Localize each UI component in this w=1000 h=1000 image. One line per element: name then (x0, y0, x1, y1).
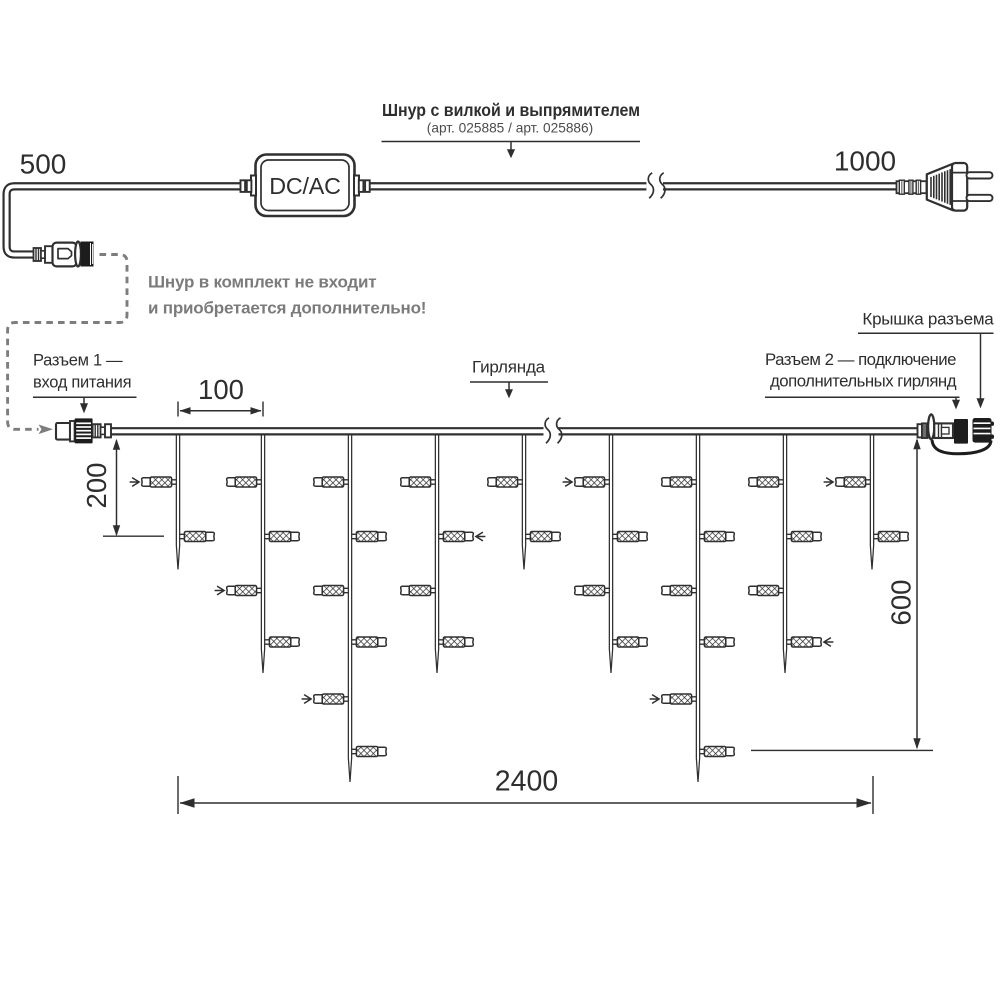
svg-text:Разъем 1 —: Разъем 1 — (33, 352, 123, 370)
svg-text:дополнительных гирлянд: дополнительных гирлянд (770, 372, 957, 391)
svg-text:и приобретается дополнительно!: и приобретается дополнительно! (148, 299, 426, 318)
svg-text:вход питания: вход питания (33, 374, 131, 392)
svg-text:100: 100 (198, 374, 244, 405)
svg-text:Гирлянда: Гирлянда (472, 358, 546, 377)
svg-text:500: 500 (20, 149, 67, 180)
svg-text:600: 600 (885, 580, 916, 626)
svg-text:1000: 1000 (834, 146, 896, 177)
svg-text:Разъем 2 — подключение: Разъем 2 — подключение (765, 350, 956, 369)
svg-text:DC/AC: DC/AC (269, 173, 340, 199)
svg-text:Крышка разъема: Крышка разъема (862, 309, 994, 328)
svg-text:(арт. 025885 / арт. 025886): (арт. 025885 / арт. 025886) (427, 121, 593, 136)
svg-text:2400: 2400 (495, 766, 558, 798)
svg-text:200: 200 (81, 463, 112, 509)
svg-text:Шнур в комплект не входит: Шнур в комплект не входит (148, 273, 376, 292)
svg-text:Шнур с вилкой и выпрямителем: Шнур с вилкой и выпрямителем (382, 100, 640, 120)
